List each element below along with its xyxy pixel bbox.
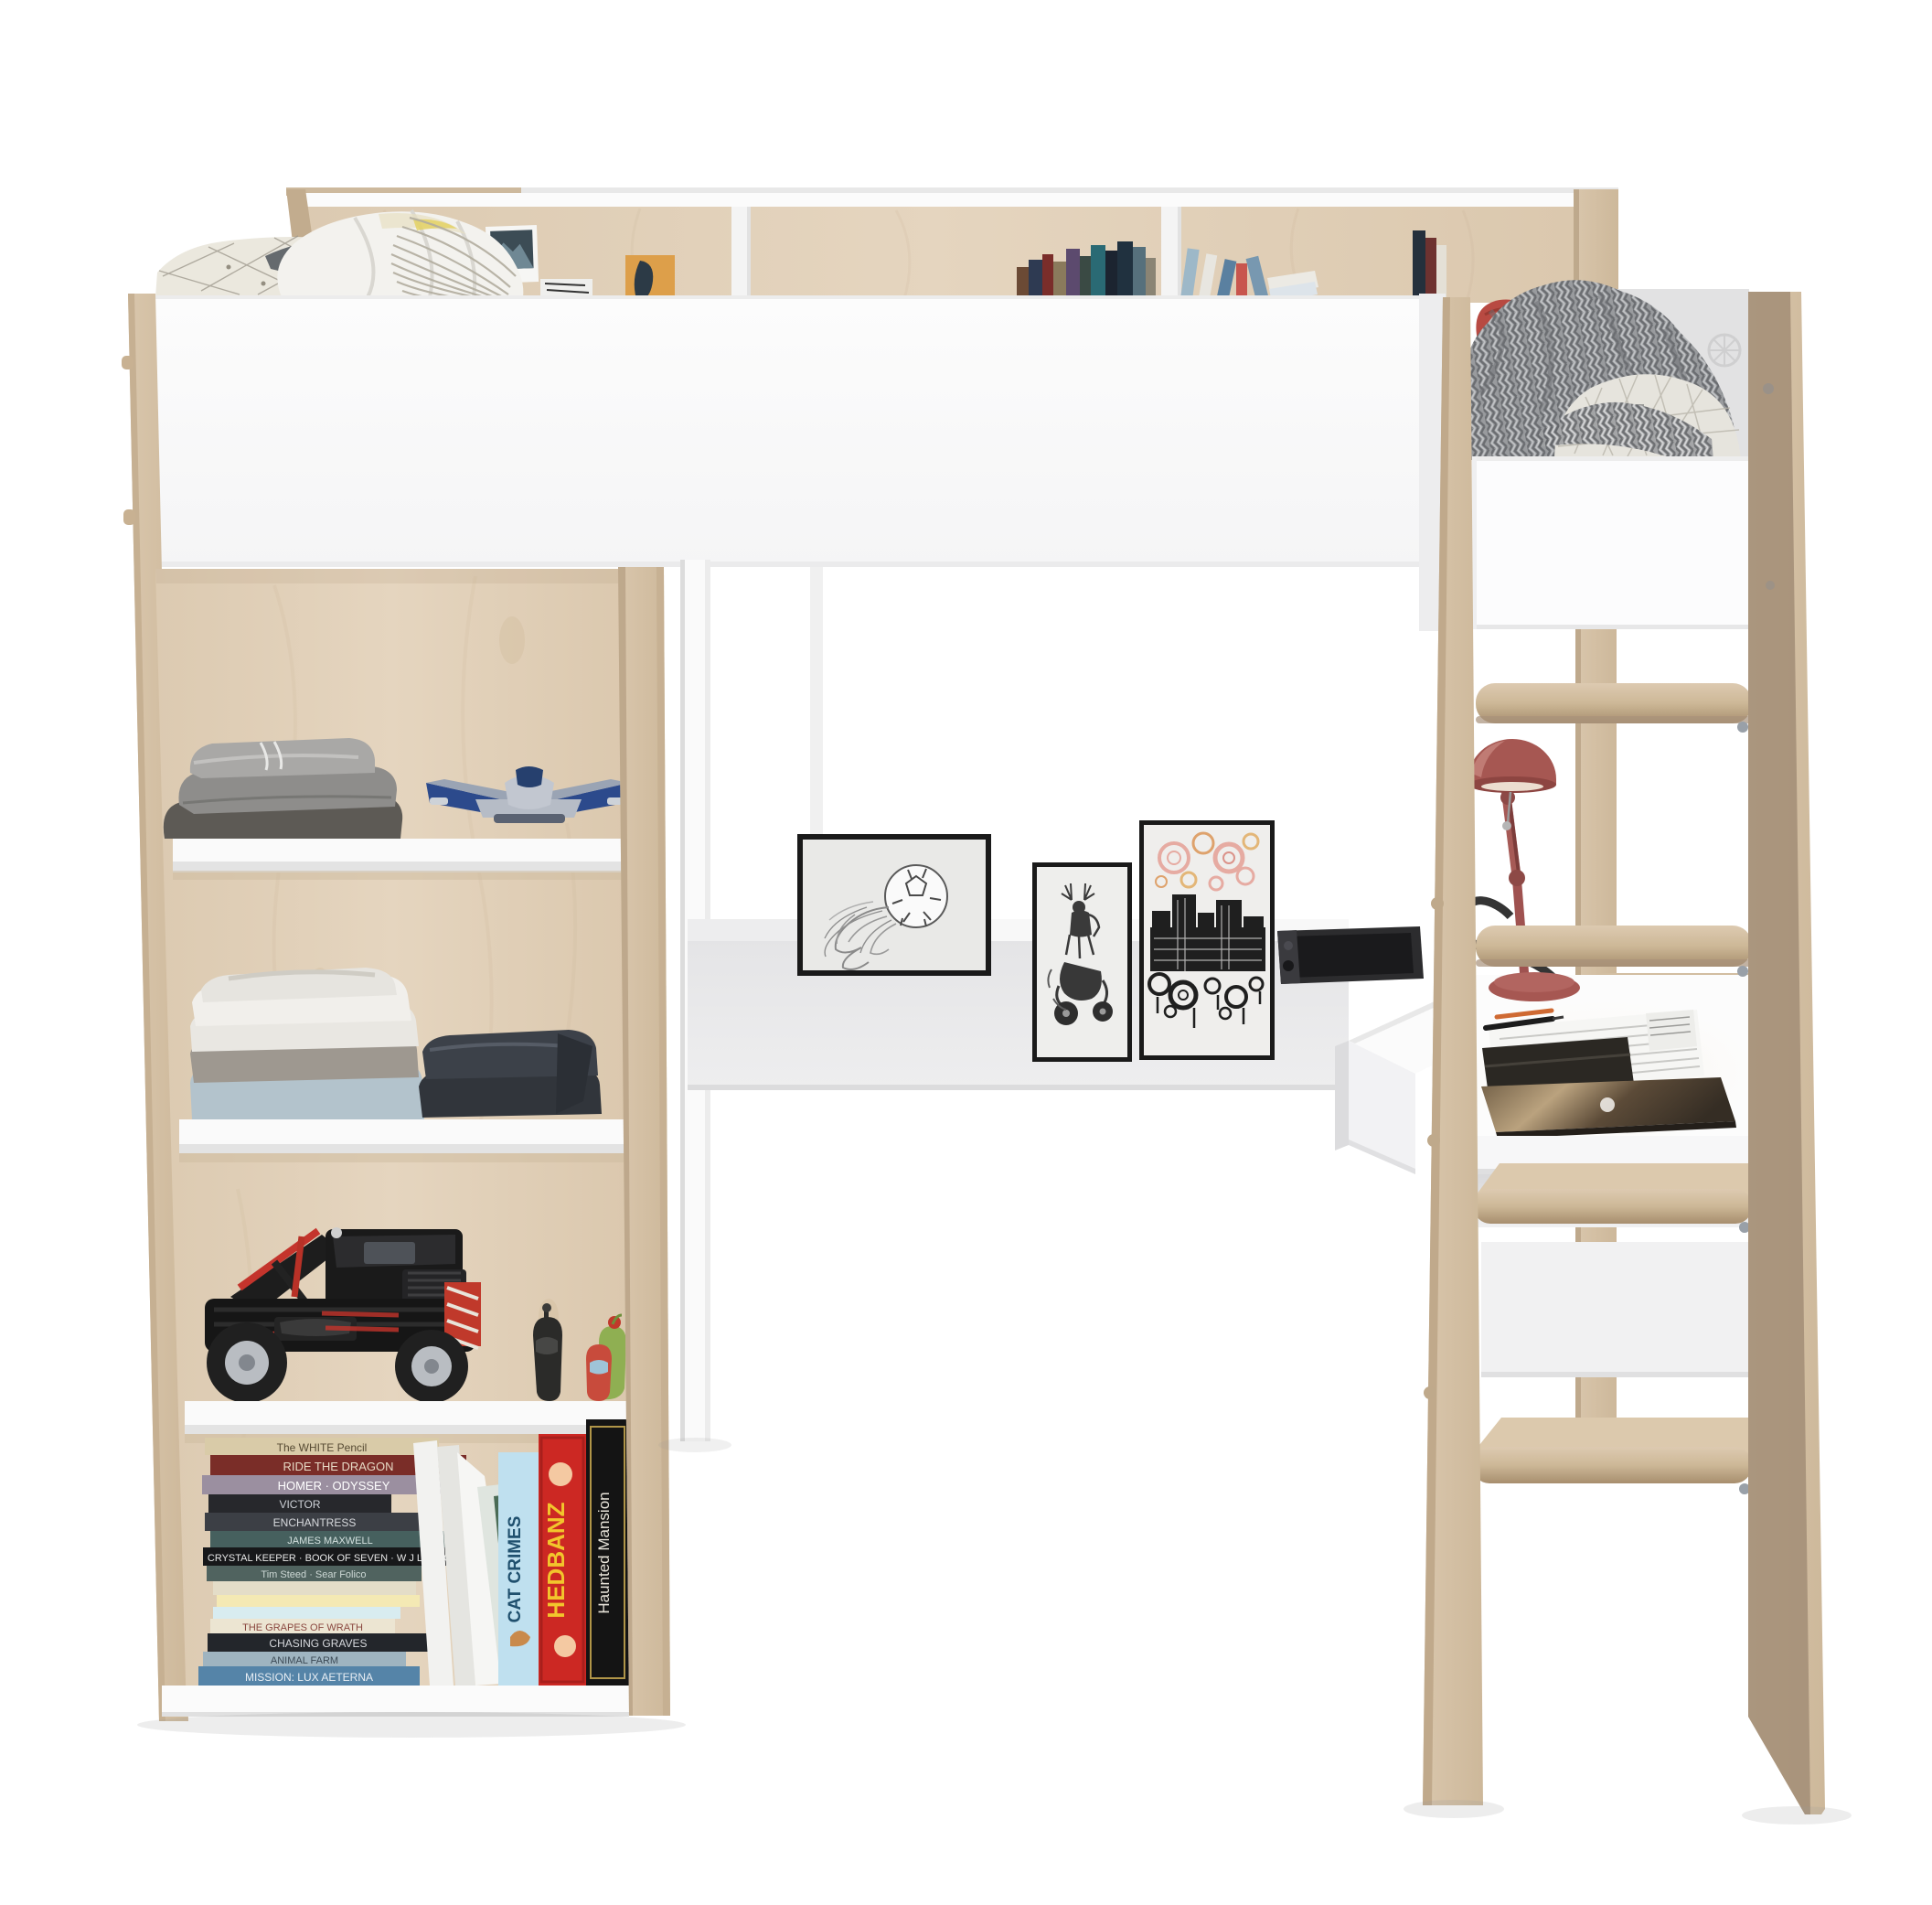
svg-text:HEDBANZ: HEDBANZ — [542, 1502, 570, 1618]
svg-text:ENCHANTRESS: ENCHANTRESS — [273, 1516, 357, 1529]
svg-text:THE GRAPES OF WRATH: THE GRAPES OF WRATH — [242, 1622, 363, 1633]
svg-text:Tim Steed · Sear Folico: Tim Steed · Sear Folico — [261, 1569, 366, 1580]
svg-text:CHASING GRAVES: CHASING GRAVES — [269, 1637, 367, 1650]
svg-text:CAT CRIMES: CAT CRIMES — [506, 1516, 525, 1623]
svg-text:VICTOR: VICTOR — [279, 1498, 320, 1511]
svg-text:RIDE THE DRAGON: RIDE THE DRAGON — [283, 1460, 393, 1473]
svg-text:Haunted Mansion: Haunted Mansion — [595, 1492, 613, 1613]
svg-text:ANIMAL FARM: ANIMAL FARM — [271, 1655, 338, 1666]
svg-text:The WHITE Pencil: The WHITE Pencil — [277, 1441, 368, 1454]
svg-text:MISSION: LUX AETERNA: MISSION: LUX AETERNA — [245, 1671, 373, 1684]
svg-text:JAMES MAXWELL: JAMES MAXWELL — [287, 1536, 373, 1546]
svg-text:HOMER · ODYSSEY: HOMER · ODYSSEY — [278, 1479, 390, 1493]
